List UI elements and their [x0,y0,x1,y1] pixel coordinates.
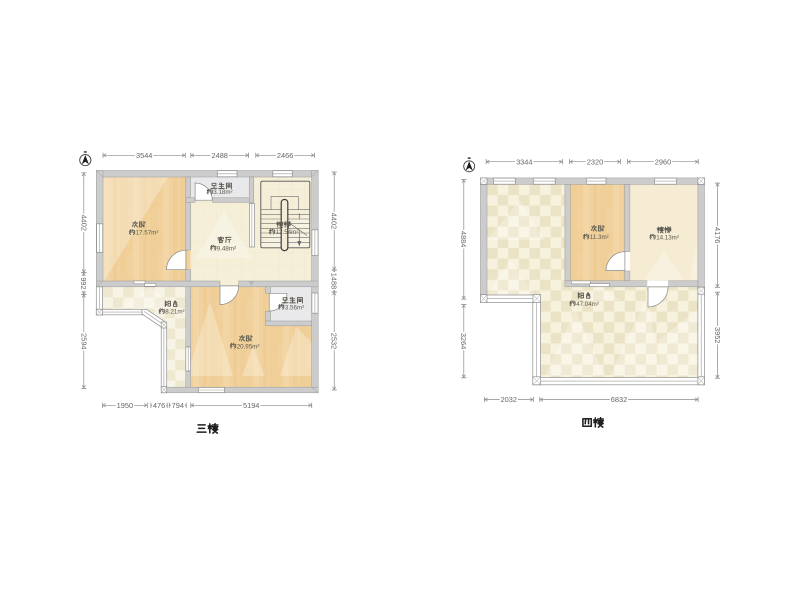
svg-text:3544: 3544 [136,151,152,160]
svg-text:3.18m²: 3.18m² [213,189,232,196]
svg-text:6832: 6832 [611,395,627,404]
svg-text:12.54m²: 12.54m² [276,229,299,236]
svg-text:794: 794 [172,401,184,410]
svg-text:4402: 4402 [330,213,339,229]
svg-text:9.48m²: 9.48m² [217,245,236,252]
svg-text:4884: 4884 [459,231,468,247]
svg-text:1950: 1950 [117,401,133,410]
svg-text:2032: 2032 [501,395,517,404]
svg-text:2488: 2488 [211,151,227,160]
svg-text:992: 992 [79,277,88,289]
svg-text:2320: 2320 [587,157,603,166]
svg-text:1488: 1488 [330,273,339,289]
svg-text:20.95m²: 20.95m² [237,343,260,350]
svg-text:3.56m²: 3.56m² [285,304,304,311]
svg-text:2594: 2594 [79,333,88,349]
svg-text:14.13m²: 14.13m² [656,234,679,241]
svg-text:3264: 3264 [459,333,468,349]
svg-text:5194: 5194 [243,401,259,410]
svg-text:2532: 2532 [330,333,339,349]
svg-text:2466: 2466 [277,151,293,160]
svg-text:2960: 2960 [655,157,671,166]
svg-text:4402: 4402 [79,215,88,231]
svg-text:47.04m²: 47.04m² [576,301,599,308]
svg-text:17.57m²: 17.57m² [136,230,159,237]
svg-text:8.21m²: 8.21m² [165,309,184,316]
svg-text:11.3m²: 11.3m² [590,234,609,241]
svg-text:476: 476 [153,401,165,410]
svg-text:3344: 3344 [516,157,532,166]
svg-text:4176: 4176 [713,227,722,243]
svg-text:3952: 3952 [713,327,722,343]
